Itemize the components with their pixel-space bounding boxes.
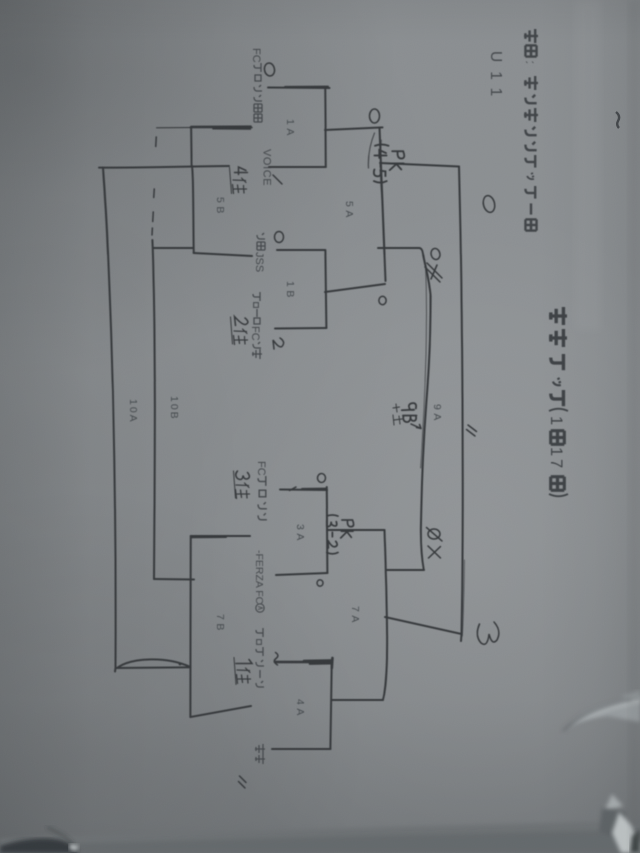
- svg-text:7: 7: [547, 459, 565, 468]
- svg-text:10A: 10A: [127, 399, 139, 424]
- svg-text:U11: U11: [487, 51, 504, 105]
- svg-text:1: 1: [547, 416, 565, 425]
- svg-text:9A: 9A: [431, 404, 443, 424]
- svg-text:10B: 10B: [168, 396, 180, 421]
- svg-text:7B: 7B: [214, 614, 226, 634]
- svg-text:1A: 1A: [284, 119, 296, 139]
- svg-text:5B: 5B: [214, 197, 226, 217]
- svg-text:3A: 3A: [294, 524, 306, 544]
- svg-text:5A: 5A: [343, 201, 355, 221]
- svg-text:FC: FC: [250, 48, 262, 63]
- svg-text:FC: FC: [249, 326, 261, 341]
- svg-text:-FERZA FC: -FERZA FC: [253, 550, 265, 605]
- svg-text:7A: 7A: [349, 606, 361, 626]
- svg-text:4A: 4A: [294, 699, 306, 719]
- svg-text:JSS: JSS: [253, 252, 265, 272]
- svg-text:FC: FC: [255, 461, 267, 476]
- svg-text:1: 1: [547, 447, 565, 456]
- svg-text:1B: 1B: [284, 281, 296, 301]
